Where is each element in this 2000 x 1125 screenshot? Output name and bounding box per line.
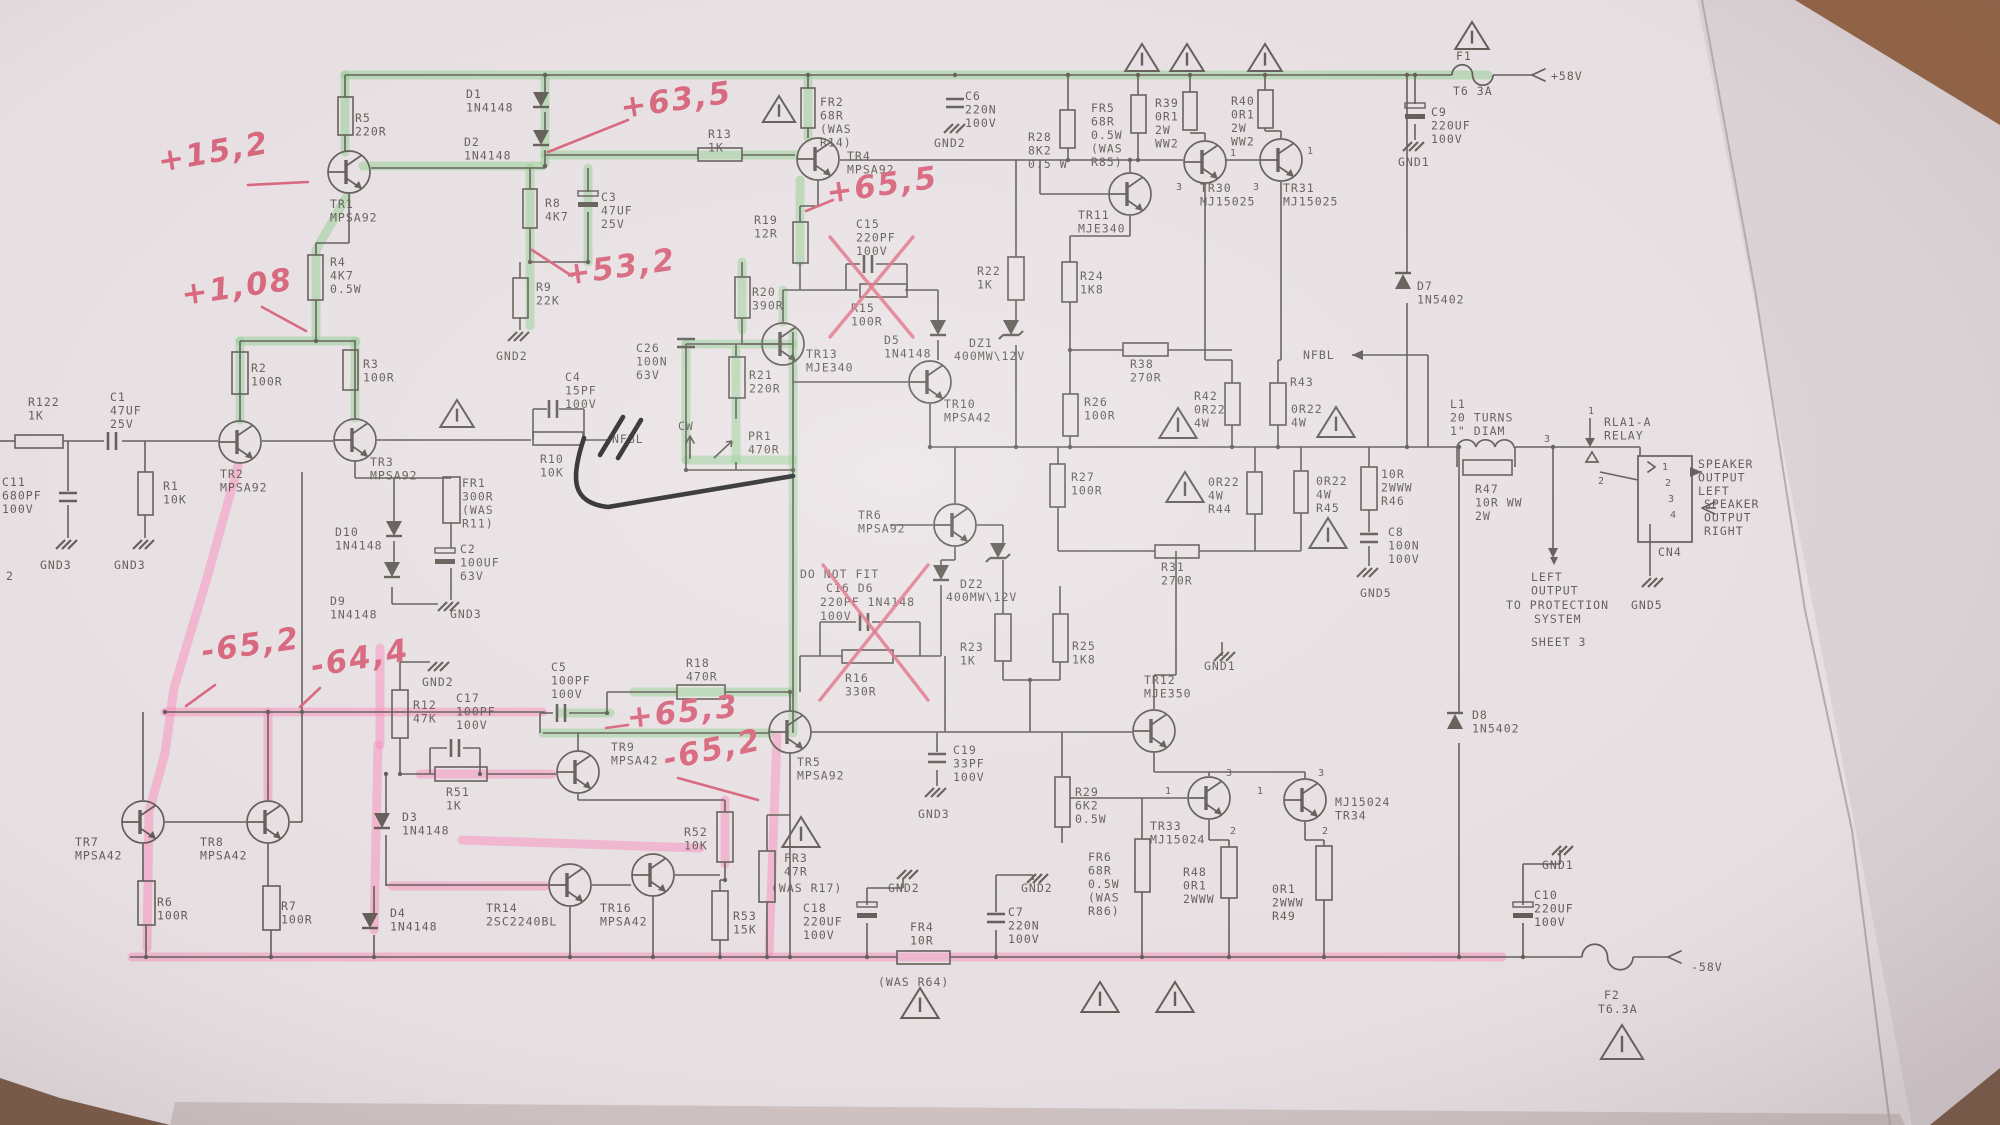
label-C16D6: C16 D6	[826, 581, 874, 595]
label-CN4: CN4	[1658, 545, 1682, 559]
pin-number: 3	[1253, 182, 1259, 193]
label-WASR17: (WAS R17)	[771, 881, 842, 895]
junction-dot	[478, 772, 482, 776]
junction-dot	[1405, 445, 1409, 449]
junction-dot	[1068, 348, 1072, 352]
label-R43: R43	[1290, 375, 1314, 389]
label-100V: 100V	[820, 609, 852, 623]
junction-dot	[651, 955, 655, 959]
label-R19: R1912R	[754, 213, 778, 241]
junction-dot	[1136, 73, 1140, 77]
junction-dot	[163, 710, 167, 714]
junction-dot	[269, 955, 273, 959]
label-GND2: GND2	[422, 675, 454, 689]
capacitor-plate	[1513, 913, 1533, 918]
label-F1: F1	[1456, 49, 1472, 63]
junction-dot	[718, 955, 722, 959]
junction-dot	[1014, 445, 1018, 449]
label-SYSTEM: SYSTEM	[1534, 612, 1582, 626]
pin-number: 1	[1257, 786, 1263, 797]
label-GND2: GND2	[1021, 881, 1053, 895]
label-T63A: T6.3A	[1598, 1002, 1638, 1016]
junction-dot	[723, 878, 727, 882]
label-T63A: T6 3A	[1453, 84, 1493, 98]
junction-dot	[806, 73, 810, 77]
junction-dot	[1227, 955, 1231, 959]
label-R12: R1247K	[413, 698, 437, 726]
label-CW: CW	[678, 419, 694, 433]
junction-dot	[765, 955, 769, 959]
label-GND3: GND3	[918, 807, 950, 821]
label-NFBL: NFBL	[1303, 348, 1335, 362]
pin-number: 1	[1230, 148, 1236, 159]
pin-number: 3	[1318, 768, 1324, 779]
pin-number: 3	[1176, 182, 1182, 193]
photo-of-schematic: R5220RD11N4148D21N4148TR1MPSA92R84K7C347…	[0, 0, 2000, 1125]
label-R25: R251K8	[1072, 639, 1096, 667]
label-TOPROTECTION: TO PROTECTION	[1506, 598, 1609, 612]
junction-dot	[1405, 73, 1409, 77]
label-+58V: +58V	[1551, 69, 1583, 83]
junction-dot	[605, 711, 609, 715]
label-GND2: GND2	[496, 349, 528, 363]
pin-number: 3	[1668, 494, 1674, 505]
capacitor-plate	[857, 913, 877, 918]
junction-dot	[144, 955, 148, 959]
schematic-photo-canvas: R5220RD11N4148D21N4148TR1MPSA92R84K7C347…	[0, 0, 2000, 1125]
label-FR3: FR347R	[784, 851, 808, 879]
label-R39: R390R12WWW2	[1155, 96, 1179, 151]
junction-dot	[398, 772, 402, 776]
pin-number: 2	[1230, 826, 1236, 837]
label--58V: -58V	[1691, 960, 1723, 974]
label-2: 2	[6, 569, 14, 583]
label-GND1: GND1	[1398, 155, 1430, 169]
junction-dot	[865, 955, 869, 959]
junction-dot	[543, 164, 547, 168]
capacitor-plate	[578, 202, 598, 207]
pin-number: 2	[1322, 826, 1328, 837]
junction-dot	[788, 955, 792, 959]
junction-dot	[1136, 158, 1140, 162]
junction-dot	[994, 955, 998, 959]
junction-dot	[1521, 955, 1525, 959]
pin-number: 3	[1226, 768, 1232, 779]
pin-number: 4	[1670, 510, 1676, 521]
junction-dot	[953, 73, 957, 77]
junction-dot	[1066, 73, 1070, 77]
label-DZ2: DZ2	[960, 577, 984, 591]
label-GND3: GND3	[40, 558, 72, 572]
label-GND1: GND1	[1542, 858, 1574, 872]
junction-dot	[1551, 445, 1555, 449]
junction-dot	[1263, 73, 1267, 77]
label-GND5: GND5	[1631, 598, 1663, 612]
label-400MW12V: 400MW\12V	[954, 349, 1025, 363]
label-GND2: GND2	[888, 881, 920, 895]
pin-number: 2	[1665, 478, 1671, 489]
label-400MW12V: 400MW\12V	[946, 590, 1017, 604]
junction-dot	[928, 445, 932, 449]
pin-number: 3	[1544, 434, 1550, 445]
junction-dot	[1413, 73, 1417, 77]
junction-dot	[372, 955, 376, 959]
junction-dot	[1322, 955, 1326, 959]
junction-dot	[314, 339, 318, 343]
junction-dot	[684, 468, 688, 472]
capacitor-plate	[435, 559, 455, 564]
label-R53: R5315K	[733, 909, 757, 937]
label-DZ1: DZ1	[969, 336, 993, 350]
label-R52: R5210K	[684, 825, 708, 853]
junction-dot	[1457, 955, 1461, 959]
junction-dot	[788, 690, 792, 694]
label-DONOTFIT: DO NOT FIT	[800, 567, 879, 581]
label-R40: R400R12WWW2	[1231, 94, 1255, 149]
junction-dot	[300, 710, 304, 714]
label-WASR64: (WAS R64)	[878, 975, 949, 989]
junction-dot	[568, 955, 572, 959]
label-F2: F2	[1604, 988, 1620, 1002]
capacitor-plate	[1405, 114, 1425, 119]
label-R10: R1010K	[540, 452, 564, 480]
junction-dot	[1276, 445, 1280, 449]
junction-dot	[1230, 445, 1234, 449]
junction-dot	[266, 710, 270, 714]
junction-dot	[1128, 158, 1132, 162]
junction-dot	[384, 772, 388, 776]
label-FR4: FR410R	[910, 920, 934, 948]
junction-dot	[791, 468, 795, 472]
label-GND3: GND3	[450, 607, 482, 621]
pin-number: 1	[1307, 146, 1313, 157]
label-GND3: GND3	[114, 558, 146, 572]
label-GND2: GND2	[934, 136, 966, 150]
pin-number: 1	[1662, 462, 1668, 473]
junction-dot	[1188, 73, 1192, 77]
pin-number: 1	[1165, 786, 1171, 797]
junction-dot	[528, 260, 532, 264]
pin-number: 2	[1598, 476, 1604, 487]
junction-dot	[1068, 445, 1072, 449]
pin-number: 1	[1588, 406, 1594, 417]
junction-dot	[1140, 955, 1144, 959]
label-GND5: GND5	[1360, 586, 1392, 600]
junction-dot	[1028, 678, 1032, 682]
label-GND1: GND1	[1204, 659, 1236, 673]
label-SHEET3: SHEET 3	[1531, 635, 1586, 649]
label-R24: R241K8	[1080, 269, 1104, 297]
junction-dot	[543, 73, 547, 77]
